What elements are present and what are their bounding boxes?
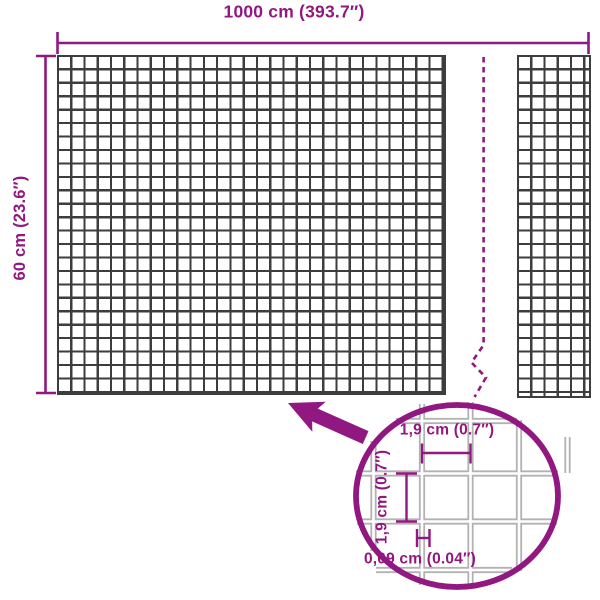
diagram-overlay xyxy=(0,0,600,600)
overall-height-label: 60 cm (23.6″) xyxy=(12,176,29,281)
detail-opening-height-label: 1,9 cm (0.7″) xyxy=(374,450,390,544)
detail-wire-thickness-label: 0,09 cm (0.04″) xyxy=(364,551,476,567)
panel-break-line xyxy=(472,57,487,397)
detail-opening-width-label: 1,9 cm (0.7″) xyxy=(400,422,494,438)
width-dimension-line xyxy=(58,32,589,54)
detail-pointer-arrow xyxy=(281,388,372,453)
overall-width-label: 1000 cm (393.7″) xyxy=(224,3,365,21)
height-dimension-line xyxy=(36,56,56,393)
product-dimension-diagram: 1000 cm (393.7″) 60 cm (23.6″) 1,9 cm (0… xyxy=(0,0,600,600)
